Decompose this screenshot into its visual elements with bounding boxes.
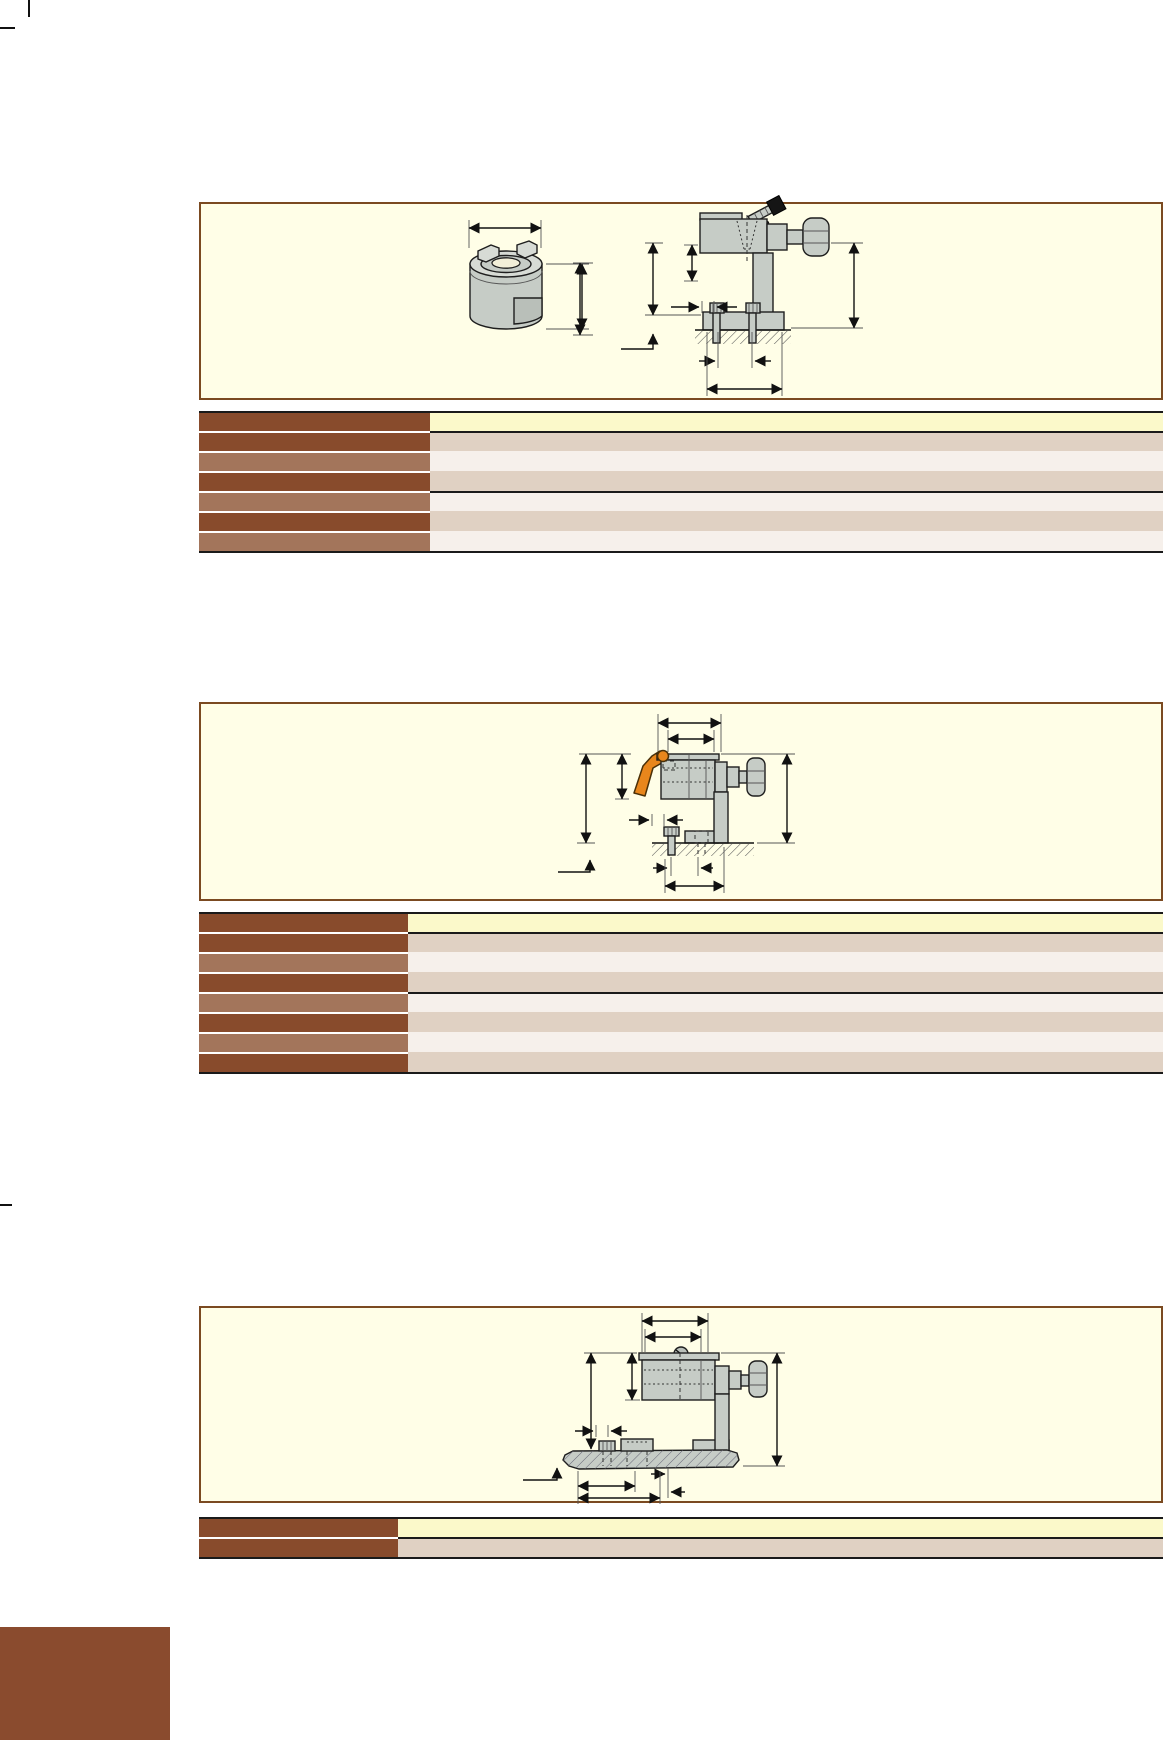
row-header-cell — [199, 433, 430, 451]
row-header-cell — [199, 473, 430, 491]
row-value-cell — [408, 1034, 1163, 1052]
table-row — [199, 453, 1163, 471]
page-footer-block — [0, 1627, 170, 1740]
row-value-cell — [408, 1014, 1163, 1032]
row-header-cell — [199, 513, 430, 531]
row-value-cell — [408, 934, 1163, 952]
row-header-cell — [199, 1014, 408, 1032]
drive-dog-and-clamp-drawing — [201, 204, 1161, 398]
lever-clamp-side-view-drawing — [201, 704, 1161, 899]
row-value-cell — [430, 413, 1163, 431]
table-row — [199, 433, 1163, 451]
table-row — [199, 1034, 1163, 1052]
row-value-cell — [408, 994, 1163, 1012]
plate-clamp-side-view-drawing — [201, 1308, 1161, 1501]
row-value-cell — [398, 1519, 1163, 1537]
row-header-cell — [199, 914, 408, 932]
spec-table-1 — [199, 411, 1163, 553]
row-value-cell — [408, 1054, 1163, 1072]
row-value-cell — [430, 533, 1163, 551]
table-row — [199, 1539, 1163, 1557]
row-value-cell — [430, 493, 1163, 511]
table-row — [199, 473, 1163, 491]
row-header-cell — [199, 1054, 408, 1072]
row-header-cell — [199, 453, 430, 471]
spec-panel-3 — [199, 1306, 1163, 1503]
table-header-row — [199, 914, 1163, 932]
spec-table-3 — [199, 1517, 1163, 1559]
row-value-cell — [398, 1539, 1163, 1557]
row-header-cell — [199, 1034, 408, 1052]
drive-dog-isometric-drawing — [469, 220, 589, 329]
table-row — [199, 994, 1163, 1012]
row-header-cell — [199, 974, 408, 992]
row-value-cell — [430, 473, 1163, 491]
row-value-cell — [430, 433, 1163, 451]
crop-mark — [0, 1204, 12, 1206]
row-header-cell — [199, 1519, 398, 1537]
table-row — [199, 533, 1163, 551]
table-row — [199, 954, 1163, 972]
row-value-cell — [408, 974, 1163, 992]
table-header-row — [199, 1519, 1163, 1537]
table-row — [199, 974, 1163, 992]
row-header-cell — [199, 954, 408, 972]
row-header-cell — [199, 934, 408, 952]
catalog-page — [0, 0, 1165, 1740]
row-header-cell — [199, 994, 408, 1012]
row-header-cell — [199, 493, 430, 511]
table-row — [199, 934, 1163, 952]
spec-panel-2 — [199, 702, 1163, 901]
table-row — [199, 513, 1163, 531]
crop-mark — [0, 27, 15, 29]
row-value-cell — [408, 954, 1163, 972]
spec-table-2 — [199, 912, 1163, 1074]
row-header-cell — [199, 1539, 398, 1557]
row-header-cell — [199, 533, 430, 551]
row-header-cell — [199, 413, 430, 431]
table-header-row — [199, 413, 1163, 431]
clamp-stop-side-view-drawing — [573, 196, 863, 396]
spec-panel-1 — [199, 202, 1163, 400]
row-value-cell — [430, 453, 1163, 471]
row-value-cell — [408, 914, 1163, 932]
table-row — [199, 493, 1163, 511]
table-row — [199, 1054, 1163, 1072]
crop-mark — [28, 0, 30, 17]
table-row — [199, 1014, 1163, 1032]
row-value-cell — [430, 513, 1163, 531]
